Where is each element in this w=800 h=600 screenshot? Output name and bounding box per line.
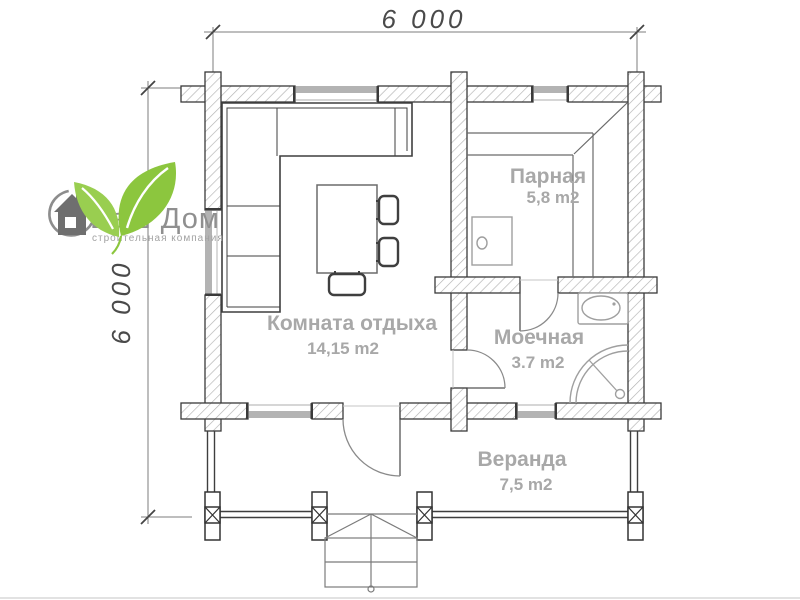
- door-washroom: [453, 350, 505, 388]
- room-area-komnata: 14,15 m2: [307, 339, 379, 358]
- door-veranda-entrance: [343, 406, 400, 476]
- door-steam-room: [520, 280, 558, 331]
- window-top-2: [531, 86, 569, 102]
- room-area-moechnaya: 3.7 m2: [512, 353, 565, 372]
- chair: [379, 238, 398, 266]
- dimension-top-value: 6 000: [381, 4, 466, 34]
- room-label-parnaya: Парная: [510, 165, 586, 188]
- company-logo: Ваш Дом строительная компания: [40, 162, 223, 254]
- room-area-parnaya: 5,8 m2: [527, 188, 580, 207]
- chair: [379, 196, 398, 224]
- room-label-moechnaya: Моечная: [494, 326, 584, 349]
- window-top-1: [293, 86, 379, 102]
- room-labels: Парная 5,8 m2 Комната отдыха 14,15 m2 Мо…: [267, 165, 586, 494]
- veranda-post: [417, 492, 432, 540]
- room-label-komnata: Комната отдыха: [267, 312, 437, 335]
- veranda-post: [205, 492, 220, 540]
- veranda-post: [628, 492, 643, 540]
- window-middle-1: [246, 403, 313, 419]
- bathtub: [578, 293, 628, 324]
- house-window: [65, 217, 76, 228]
- window-middle-2: [515, 403, 557, 419]
- veranda-structure: [205, 431, 643, 592]
- room-label-veranda: Веранда: [477, 448, 566, 471]
- dining-table: [317, 185, 377, 273]
- floor-plan-page: 6 000 6 000: [0, 0, 800, 600]
- dimension-left-value: 6 000: [106, 259, 136, 344]
- entrance-stairs: [325, 514, 417, 592]
- sauna-stove: [472, 217, 512, 265]
- dimension-top: 6 000: [204, 4, 646, 82]
- floor-plan-drawing: 6 000 6 000: [0, 0, 800, 600]
- room-area-veranda: 7,5 m2: [500, 475, 553, 494]
- chair: [329, 274, 365, 295]
- veranda-post: [312, 492, 327, 540]
- corner-shower: [570, 345, 628, 403]
- dimension-left: 6 000: [106, 81, 203, 524]
